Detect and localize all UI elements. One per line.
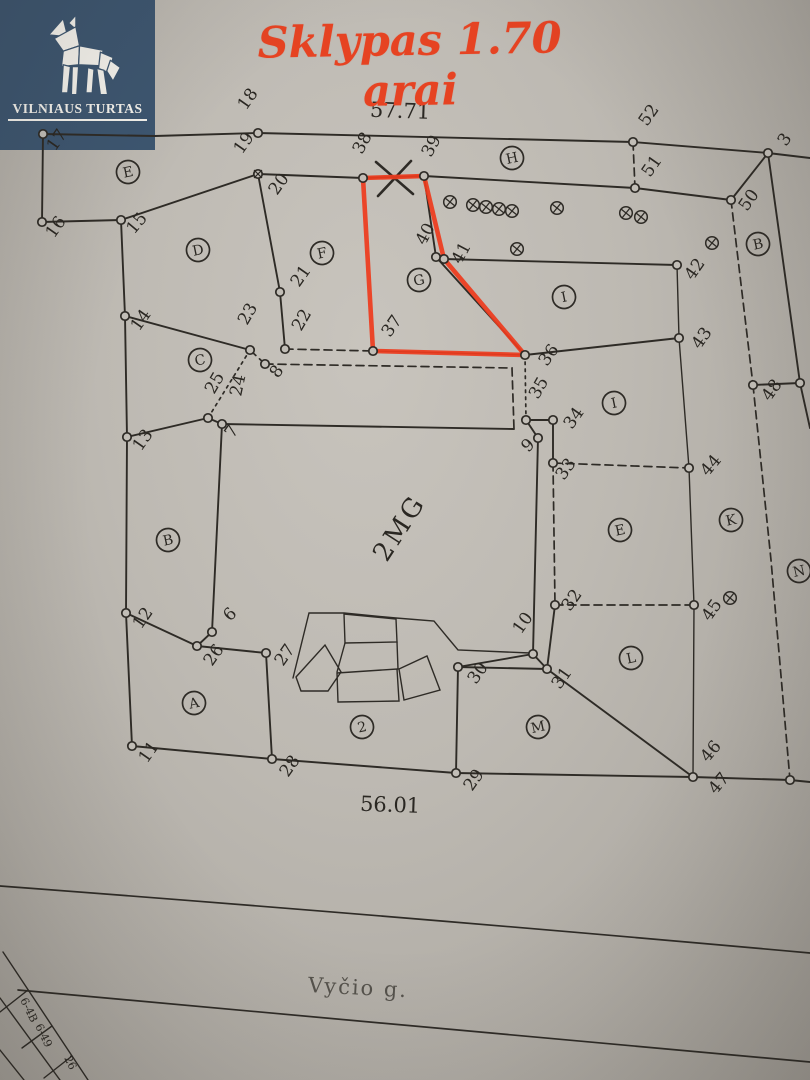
point-number-label: 34 <box>560 404 589 433</box>
svg-text:B: B <box>751 236 764 254</box>
survey-cross-mark <box>724 592 737 605</box>
plan-line <box>399 656 440 700</box>
survey-cross-mark <box>480 201 493 214</box>
point-number-label: 11 <box>135 738 164 767</box>
plan-line <box>265 364 514 429</box>
boundary-point-marker <box>440 255 448 263</box>
bottom-dimension: 56.01 <box>360 792 421 818</box>
svg-text:C: C <box>193 352 207 370</box>
boundary-point-marker <box>689 773 697 781</box>
survey-cross-mark <box>635 211 648 224</box>
point-number-label: 14 <box>127 306 156 335</box>
svg-text:2: 2 <box>356 719 368 737</box>
point-number-label: 24 <box>226 373 250 398</box>
point-number-label: 36 <box>535 341 564 370</box>
svg-text:E: E <box>613 522 626 540</box>
survey-cross-mark <box>493 203 506 216</box>
svg-text:I: I <box>560 289 569 306</box>
survey-cross-mark <box>506 205 519 218</box>
plan-line <box>337 669 399 702</box>
boundary-point-marker <box>420 172 428 180</box>
boundary-point-marker <box>675 334 683 342</box>
point-number-label: 44 <box>697 451 726 480</box>
plot-letter-badge: C <box>186 346 213 373</box>
svg-text:G: G <box>412 272 426 290</box>
corner-table-cell: 6-4B <box>17 996 40 1025</box>
boundary-point-marker <box>432 253 440 261</box>
boundary-point-marker <box>359 174 367 182</box>
boundary-point-marker <box>685 464 693 472</box>
plot-letter-badge: G <box>405 266 432 293</box>
boundary-point-marker <box>268 755 276 763</box>
boundary-point-marker <box>254 170 262 178</box>
plan-line <box>222 424 514 429</box>
boundary-point-marker <box>522 416 530 424</box>
point-number-label: 38 <box>349 129 377 157</box>
plan-line <box>0 886 810 953</box>
plan-line <box>553 463 555 605</box>
point-number-label: 48 <box>758 376 787 405</box>
plan-line <box>731 200 753 385</box>
boundary-point-marker <box>690 601 698 609</box>
svg-text:E: E <box>121 164 134 182</box>
boundary-point-marker <box>543 665 551 673</box>
point-number-label: 21 <box>287 262 316 291</box>
boundary-point-marker <box>521 351 529 359</box>
survey-cross-mark <box>620 207 633 220</box>
point-number-label: 15 <box>123 209 152 238</box>
svg-text:N: N <box>792 563 807 581</box>
boundary-point-marker <box>764 149 772 157</box>
boundary-point-marker <box>262 649 270 657</box>
plan-line <box>344 614 397 643</box>
boundary-point-marker <box>454 663 462 671</box>
svg-text:H: H <box>505 150 520 168</box>
plot-letter-badge: N <box>785 557 810 584</box>
point-number-label: 12 <box>129 604 158 633</box>
plan-line <box>456 667 458 773</box>
page-title: Sklypas 1.70 arai <box>204 12 616 119</box>
point-number-label: 16 <box>42 213 71 242</box>
survey-cross-mark <box>706 237 719 250</box>
point-number-label: 41 <box>448 239 476 267</box>
boundary-point-marker <box>369 347 377 355</box>
survey-cross-mark <box>511 243 524 256</box>
point-number-label: 6 <box>219 604 241 626</box>
street-label: Vyčio g. <box>306 973 408 1002</box>
svg-text:I: I <box>610 395 619 412</box>
point-number-label: 35 <box>525 374 553 403</box>
point-number-label: 29 <box>460 766 489 795</box>
boundary-point-marker <box>121 312 129 320</box>
plot-letter-badge: 2 <box>348 713 375 740</box>
plot-letter-badge: I <box>600 389 627 416</box>
boundary-point-marker <box>786 776 794 784</box>
boundary-point-marker <box>796 379 804 387</box>
boundary-point-marker <box>281 345 289 353</box>
plot-letter-badge: M <box>524 713 551 740</box>
point-number-label: 52 <box>635 101 664 130</box>
plan-line <box>633 142 635 188</box>
point-number-label: 17 <box>43 126 72 155</box>
point-number-label: 37 <box>378 312 407 341</box>
boundary-point-marker <box>549 416 557 424</box>
plot-letter-badge: B <box>154 526 181 553</box>
boundary-point-marker <box>208 628 216 636</box>
boundary-point-marker <box>204 414 212 422</box>
plan-line <box>258 174 731 200</box>
svg-text:M: M <box>529 718 546 737</box>
survey-cross-mark <box>551 202 564 215</box>
plot-letter-badge: H <box>498 144 525 171</box>
corner-table-cell: 26 <box>61 1054 79 1072</box>
plan-line <box>121 220 132 746</box>
svg-text:A: A <box>187 695 202 713</box>
boundary-point-marker <box>452 769 460 777</box>
point-number-label: 28 <box>276 752 305 781</box>
plan-line <box>18 990 810 1062</box>
plot-letter-badge: B <box>744 230 771 257</box>
plan-line <box>525 355 526 420</box>
plan-line <box>753 385 790 780</box>
point-number-label: 51 <box>638 152 667 181</box>
survey-cross-mark <box>444 196 457 209</box>
plan-line <box>266 653 272 759</box>
plot-letter-badge: D <box>184 236 211 263</box>
plan-line <box>285 349 373 351</box>
point-number-label: 42 <box>681 255 710 284</box>
point-number-label: 26 <box>200 641 229 670</box>
boundary-point-marker <box>749 381 757 389</box>
point-number-label: 43 <box>688 324 717 353</box>
svg-text:F: F <box>316 245 329 263</box>
boundary-point-marker <box>276 288 284 296</box>
plot-letter-badge: E <box>606 516 633 543</box>
boundary-point-marker <box>39 130 47 138</box>
point-number-label: 25 <box>201 369 229 398</box>
listing-photo: 1718192016151413121121222324258762627282… <box>0 0 810 1080</box>
plan-line <box>296 645 341 691</box>
point-number-label: 32 <box>558 586 587 615</box>
plot-letter-badge: L <box>617 644 644 671</box>
survey-cross-mark <box>467 199 480 212</box>
plan-line <box>258 174 285 349</box>
boundary-point-marker <box>254 129 262 137</box>
cadastral-plan: 1718192016151413121121222324258762627282… <box>0 0 810 1080</box>
svg-text:B: B <box>161 532 174 550</box>
point-number-label: 27 <box>271 641 300 670</box>
boundary-point-marker <box>246 346 254 354</box>
point-number-label: 46 <box>697 737 726 766</box>
point-number-label: 30 <box>464 659 493 688</box>
plot-letter-badge: K <box>717 506 744 533</box>
boundary-point-marker <box>193 642 201 650</box>
svg-text:K: K <box>724 512 738 530</box>
plot-letter-badge: I <box>550 283 577 310</box>
svg-text:L: L <box>625 650 637 668</box>
plan-line <box>0 1050 24 1080</box>
point-number-label: 3 <box>774 130 797 150</box>
point-number-label: 23 <box>234 300 262 329</box>
boundary-point-marker <box>122 609 130 617</box>
point-number-label: 47 <box>705 769 734 798</box>
plot-letter-badge: F <box>308 239 335 266</box>
boundary-point-marker <box>529 650 537 658</box>
boundary-point-marker <box>673 261 681 269</box>
svg-text:D: D <box>191 242 205 260</box>
plan-line <box>212 424 222 632</box>
boundary-point-marker <box>631 184 639 192</box>
plot-letter-badge: A <box>180 689 207 716</box>
plot-letter-badge: E <box>114 158 141 185</box>
point-number-label: 22 <box>288 306 316 335</box>
plan-line <box>444 259 677 265</box>
plan-line <box>547 605 555 669</box>
boundary-point-marker <box>128 742 136 750</box>
plan-line <box>397 642 398 669</box>
point-number-label: 45 <box>698 596 727 625</box>
boundary-point-marker <box>629 138 637 146</box>
boundary-point-marker <box>534 434 542 442</box>
building-label: 2MG <box>367 489 432 567</box>
